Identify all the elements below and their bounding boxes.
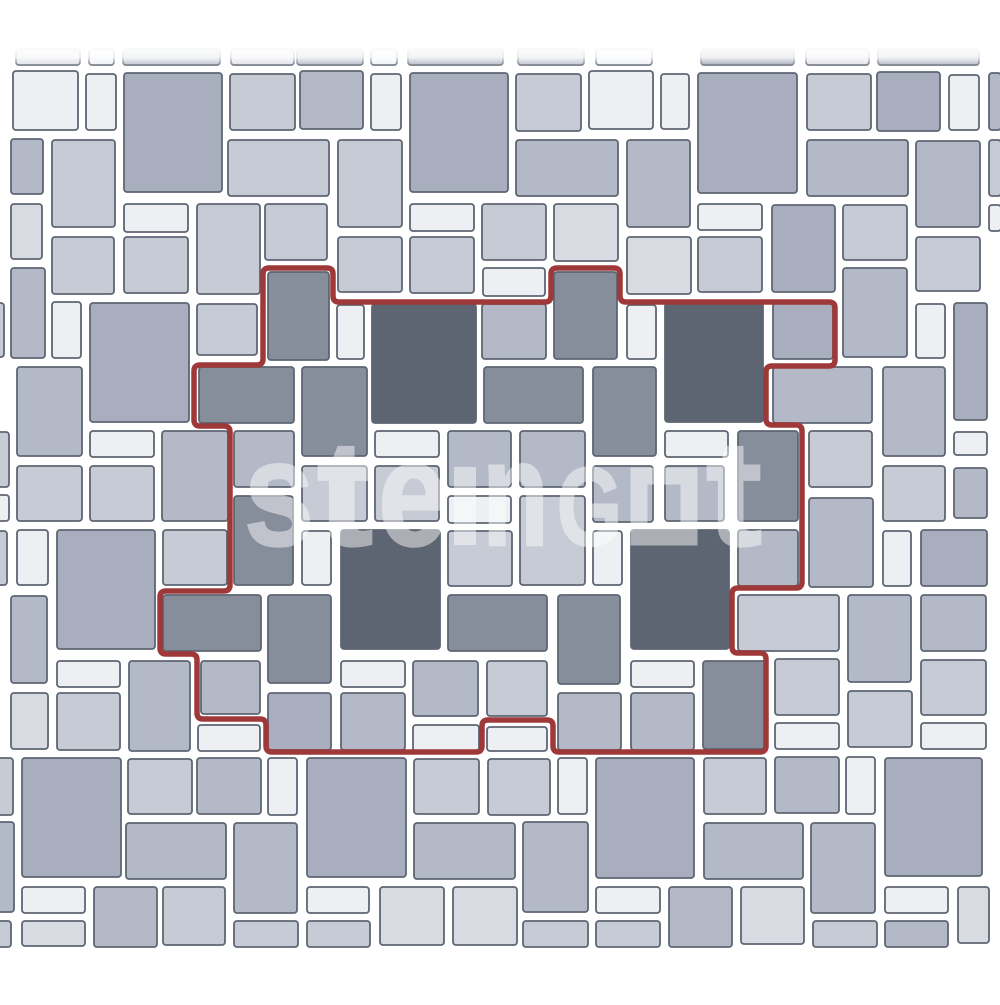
svg-text:e: e — [378, 409, 448, 577]
svg-text:s: s — [244, 409, 314, 577]
svg-text:t: t — [706, 409, 762, 577]
svg-text:n: n — [482, 409, 549, 577]
svg-text:t: t — [317, 409, 373, 577]
svg-text:G: G — [557, 446, 622, 569]
